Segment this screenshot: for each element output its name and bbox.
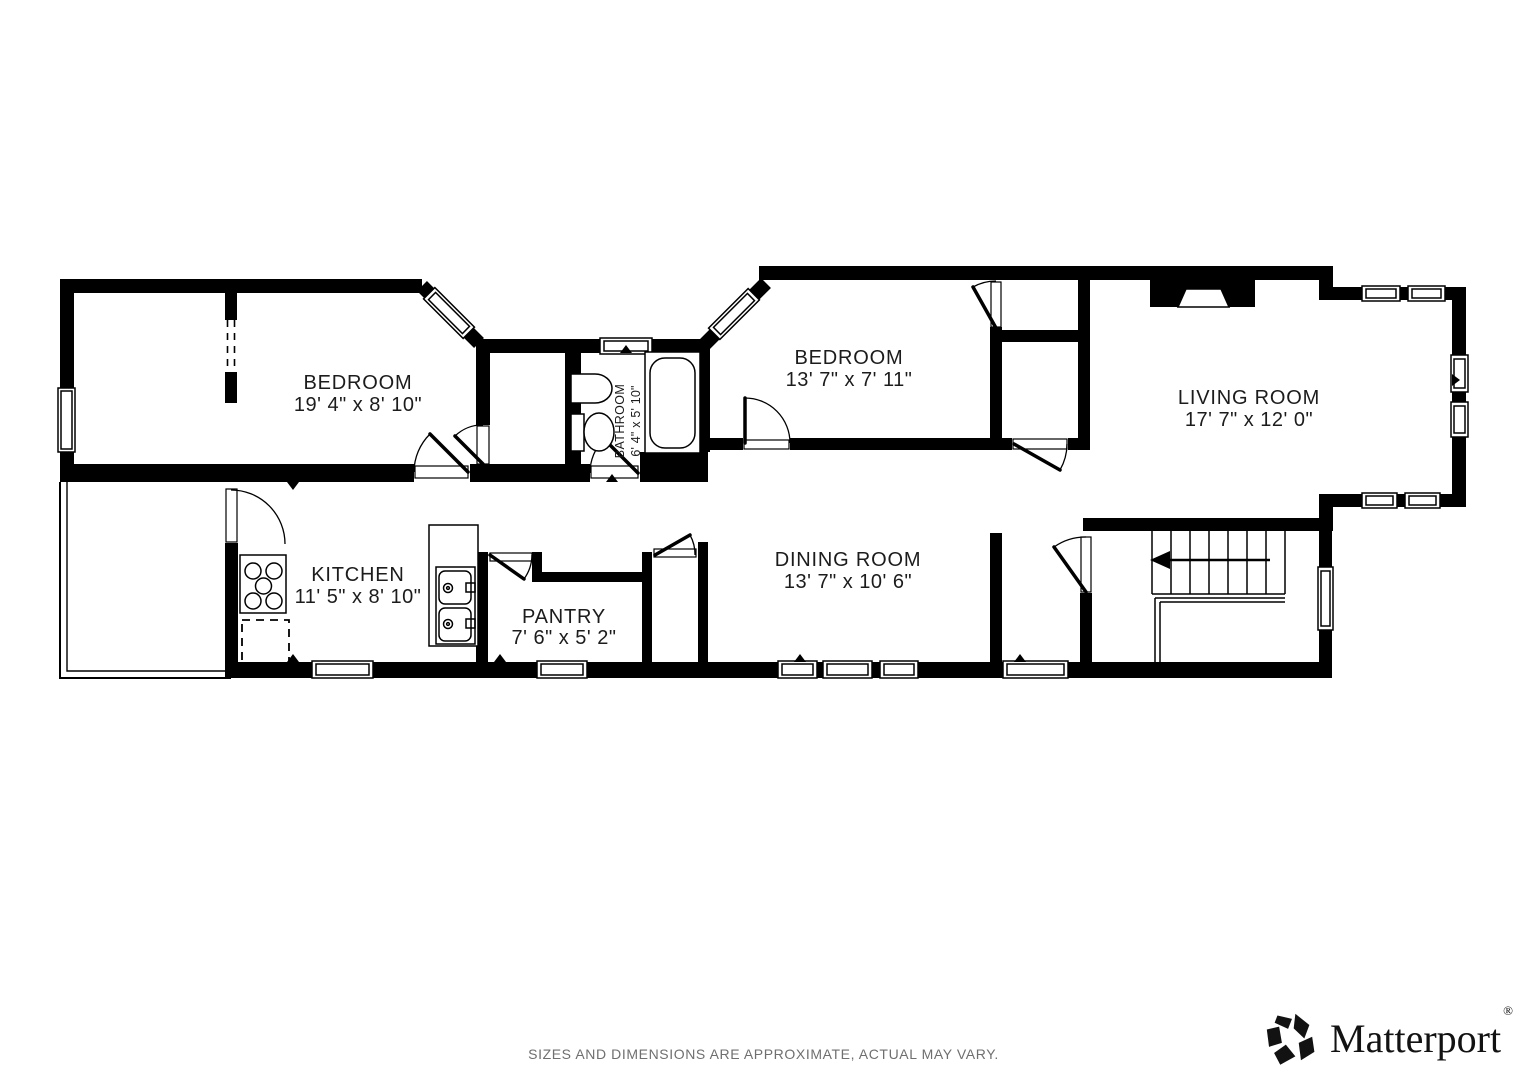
window [312, 661, 373, 678]
window [1405, 493, 1440, 508]
fireplace-icon [1178, 289, 1229, 307]
toilet-icon [571, 413, 614, 451]
registered-mark: ® [1503, 1003, 1513, 1018]
window [58, 388, 75, 452]
room-dims-bathroom: 6' 4" x 5' 10" [629, 385, 643, 456]
room-dims-bedroom-2: 13' 7" x 7' 11" [786, 369, 913, 391]
room-label-bedroom-1: BEDROOM [304, 372, 413, 394]
porch-outline [60, 482, 230, 678]
room-dims-bedroom-1: 19' 4" x 8' 10" [294, 394, 422, 416]
bathroom-sink-icon [571, 374, 612, 403]
room-label-living-room: LIVING ROOM [1178, 387, 1320, 409]
brand-logo: Matterport® [1264, 1012, 1511, 1066]
stove-icon [240, 555, 286, 613]
window [709, 289, 760, 340]
window [1362, 286, 1400, 301]
brand-name: Matterport [1330, 1016, 1501, 1061]
window [424, 288, 475, 339]
window [880, 661, 918, 678]
window [1451, 402, 1468, 437]
refrigerator-dashed-outline [242, 620, 289, 663]
matterport-logo-icon [1264, 1012, 1320, 1066]
dashed-wall-opening [228, 320, 235, 372]
room-dims-kitchen: 11' 5" x 8' 10" [295, 586, 422, 608]
room-label-bathroom: BATHROOM [613, 384, 627, 459]
room-label-dining-room: DINING ROOM [775, 549, 922, 571]
window [1003, 661, 1068, 678]
window [1362, 493, 1397, 508]
window [778, 661, 817, 678]
bathtub-icon [645, 352, 700, 453]
room-dims-living-room: 17' 7" x 12' 0" [1185, 409, 1313, 431]
room-label-pantry: PANTRY [522, 606, 606, 628]
window [1451, 355, 1468, 392]
floorplan-svg: BEDROOM 19' 4" x 8' 10" BATHROOM 6' 4" x… [0, 0, 1527, 1080]
kitchen-sink-icon [429, 525, 478, 646]
room-label-kitchen: KITCHEN [311, 564, 404, 586]
room-dims-pantry: 7' 6" x 5' 2" [511, 627, 616, 649]
stairs [1150, 531, 1285, 662]
room-dims-dining-room: 13' 7" x 10' 6" [784, 571, 912, 593]
window [1408, 286, 1445, 301]
room-label-bedroom-2: BEDROOM [795, 347, 904, 369]
window [1318, 567, 1333, 630]
window [823, 661, 872, 678]
window [537, 661, 587, 678]
stairs-down-arrow-icon [1150, 551, 1270, 569]
walls [60, 266, 1466, 678]
floorplan-page: BEDROOM 19' 4" x 8' 10" BATHROOM 6' 4" x… [0, 0, 1527, 1080]
